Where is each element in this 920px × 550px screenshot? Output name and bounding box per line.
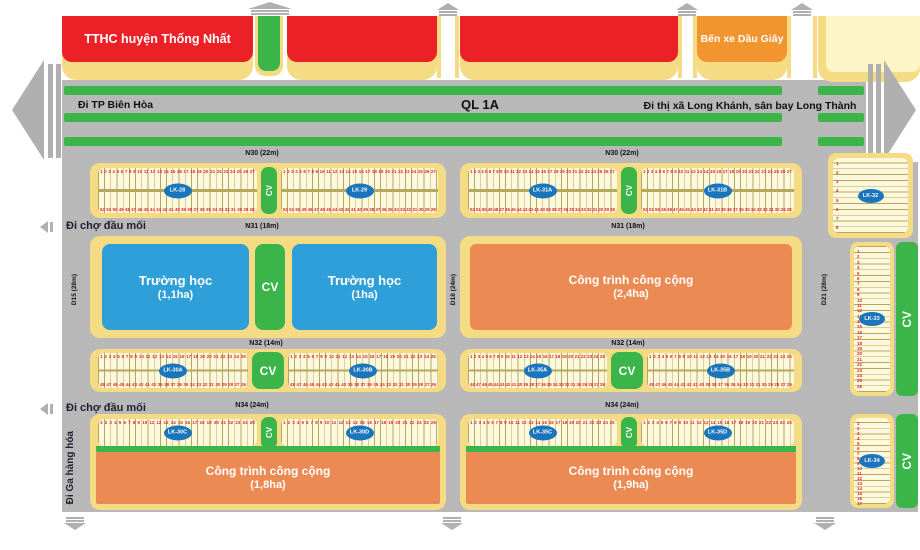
park-block-top: [258, 16, 280, 71]
west-road-arrow-icon: [40, 403, 53, 415]
cv-strip: CV: [261, 167, 277, 214]
cv-strip: CV: [621, 417, 637, 449]
lot-numbers: 1234567891011121314151617181920212223242…: [100, 354, 246, 359]
lot-block-lk34: 1234567891011121314151617LK-34: [854, 418, 890, 504]
road-edge: [787, 16, 791, 78]
lot-numbers: 5251504948474645444342414039383736353433…: [470, 207, 615, 212]
lot-block-lk35a: 1234567891011121314151617181920212223242…: [468, 353, 607, 388]
south-arrow-icon: [64, 516, 86, 530]
public3-area: (1,9ha): [569, 479, 694, 492]
public1-name: Công trình công cộng: [569, 273, 694, 288]
north-arrow-icon: [791, 3, 813, 16]
lot-block-lk29: 1234567891011121314151617181920212223242…: [281, 168, 438, 213]
public-block-3: Công trình công cộng (1,9ha): [466, 452, 796, 504]
lot-label-lk30d: LK-30D: [346, 425, 374, 440]
median-strip: [818, 86, 864, 95]
lot-label-lk28: LK-28: [164, 183, 192, 198]
north-arrow-icon: [437, 3, 459, 16]
lot-numbers: 4847464544434241403938373635343332313029…: [649, 382, 792, 387]
road-label-n30-left: N30 (22m): [222, 150, 302, 157]
cv-park-block: CV: [252, 352, 284, 389]
lot-label-lk29: LK-29: [346, 183, 374, 198]
lot-label-lk35b: LK-35B: [707, 363, 735, 378]
lot-label-lk33: LK-33: [859, 312, 885, 326]
lot-numbers: 1234567891011121314151617181920212223242…: [470, 354, 605, 359]
road-label-d15: D15 (28m): [68, 250, 81, 330]
school-block-1: Trường học (1,1ha): [102, 244, 249, 330]
lot-block-lk31b: 1234567891011121314151617181920212223242…: [641, 168, 794, 213]
lot-numbers: 1234567891011121314151617181920212223242…: [649, 354, 792, 359]
red-block-2: [287, 16, 437, 62]
road-label-n31-left: N31 (18m): [222, 223, 302, 230]
lot-label-lk31b: LK-31B: [704, 183, 732, 198]
school1-area: (1,1ha): [139, 289, 213, 302]
lot-numbers: 12345678: [836, 161, 839, 230]
public1-area: (2,4ha): [569, 288, 694, 301]
lot-label-lk35d: LK-35D: [704, 425, 732, 440]
road-edge: [678, 16, 682, 78]
cv-park-strip: CV: [896, 414, 918, 508]
public-block-2: Công trình công cộng (1,8ha): [96, 452, 440, 504]
road-label-n30-right: N30 (22m): [582, 150, 662, 157]
school2-name: Trường học: [328, 273, 402, 289]
highway-name: QL 1A: [400, 97, 560, 112]
lot-label-lk34: LK-34: [859, 454, 885, 468]
side-label-market-1: Đi chợ đầu mối: [66, 220, 146, 232]
south-arrow-icon: [814, 516, 836, 530]
cv-park-block: CV: [611, 352, 643, 389]
public2-name: Công trình công cộng: [206, 464, 331, 479]
side-label-freight-station: Đi Ga hàng hóa: [62, 425, 78, 510]
tthc-label: TTHC huyện Thống Nhất: [84, 32, 231, 46]
lot-numbers: 5251504948474645444342414039383736353433…: [283, 207, 436, 212]
school-block-2: Trường học (1ha): [292, 244, 437, 330]
cv-strip: CV: [621, 167, 637, 214]
lot-block-lk35b: 1234567891011121314151617181920212223242…: [647, 353, 794, 388]
road-edge: [813, 16, 817, 78]
public-block-1: Công trình công cộng (2,4ha): [470, 244, 792, 330]
bus-station-block: Bến xe Dầu Giây: [697, 16, 787, 62]
road-edge: [437, 16, 441, 78]
lot-numbers: 5251504948474645444342414039383736353433…: [100, 207, 255, 212]
lot-block-lk32: 12345678LK-32: [833, 158, 908, 233]
median-strip: [64, 137, 782, 146]
lot-label-lk30c: LK-30C: [164, 425, 192, 440]
north-arrow-icon: [248, 2, 292, 15]
lot-label-lk30a: LK-30A: [159, 363, 187, 378]
lot-numbers: 4847464544434241403938373635343332313029…: [470, 382, 605, 387]
cv-park-strip: CV: [896, 242, 918, 396]
public2-area: (1,8ha): [206, 479, 331, 492]
lot-block-lk30b: 1234567891011121314151617181920212223242…: [288, 353, 438, 388]
cv-strip: CV: [261, 417, 277, 449]
road-label-n31-right: N31 (18m): [588, 223, 668, 230]
road-label-n34-left: N34 (24m): [212, 402, 292, 409]
lot-numbers: 1234567891011121314151617181920212223242…: [290, 354, 436, 359]
lot-numbers: 1234567891011121314151617181920212223242…: [643, 169, 792, 174]
lot-numbers: 1234567891011121314151617181920212223242…: [100, 169, 255, 174]
lot-block-lk35d: 1234567891011121314151617181920212223242…: [641, 419, 794, 446]
lot-numbers: 1234567891011121314151617181920212223242…: [283, 169, 436, 174]
lot-numbers: 4847464544434241403938373635343332313029…: [290, 382, 436, 387]
south-arrow-icon: [441, 516, 463, 530]
lot-block-lk35c: 1234567891011121314151617181920212223242…: [468, 419, 617, 446]
lot-numbers: 5251504948474645444342414039383736353433…: [643, 207, 792, 212]
lot-block-lk30c: 1234567891011121314151617181920212223242…: [98, 419, 257, 446]
school1-name: Trường học: [139, 273, 213, 289]
cv-park-block: CV: [255, 244, 285, 330]
public3-name: Công trình công cộng: [569, 464, 694, 479]
lot-block-lk28: 1234567891011121314151617181920212223242…: [98, 168, 257, 213]
lot-label-lk32: LK-32: [858, 189, 884, 203]
west-road-arrow-icon: [40, 221, 53, 233]
planning-map: TTHC huyện Thống Nhất Bến xe Dầu Giây Đi…: [0, 0, 920, 550]
lot-label-lk30b: LK-30B: [349, 363, 377, 378]
lot-numbers: 4847464544434241403938373635343332313029…: [100, 382, 246, 387]
road-edge: [455, 16, 459, 78]
road-label-d21: D21 (28m): [818, 250, 831, 330]
lot-numbers: 1234567891011121314151617181920212223242…: [470, 169, 615, 174]
road-label-n32-right: N32 (14m): [588, 340, 668, 347]
lot-label-lk35c: LK-35C: [529, 425, 557, 440]
red-block-3: [460, 16, 678, 62]
north-arrow-icon: [676, 3, 698, 16]
road-label-n34-right: N34 (24m): [582, 402, 662, 409]
median-strip: [64, 113, 782, 122]
lot-block-lk33: 1234567891011121314151617181920212223242…: [854, 246, 890, 392]
median-strip: [818, 113, 864, 122]
lot-label-lk35a: LK-35A: [524, 363, 552, 378]
side-label-market-2: Đi chợ đầu mối: [66, 402, 146, 414]
highway-east-label: Đi thị xã Long Khánh, sân bay Long Thành: [640, 100, 860, 112]
lot-block-lk30d: 1234567891011121314151617181920212223242…: [281, 419, 438, 446]
school2-area: (1ha): [328, 289, 402, 302]
lot-block-lk31a: 1234567891011121314151617181920212223242…: [468, 168, 617, 213]
median-strip: [818, 137, 864, 146]
lot-block-lk30a: 1234567891011121314151617181920212223242…: [98, 353, 248, 388]
median-strip: [64, 86, 782, 95]
road-label-n32-left: N32 (14m): [226, 340, 306, 347]
road-label-d18: D18 (24m): [447, 250, 460, 330]
bus-station-label: Bến xe Dầu Giây: [701, 33, 784, 45]
highway-west-label: Đi TP Biên Hòa: [78, 99, 153, 111]
lot-label-lk31a: LK-31A: [529, 183, 557, 198]
tthc-block: TTHC huyện Thống Nhất: [62, 16, 253, 62]
